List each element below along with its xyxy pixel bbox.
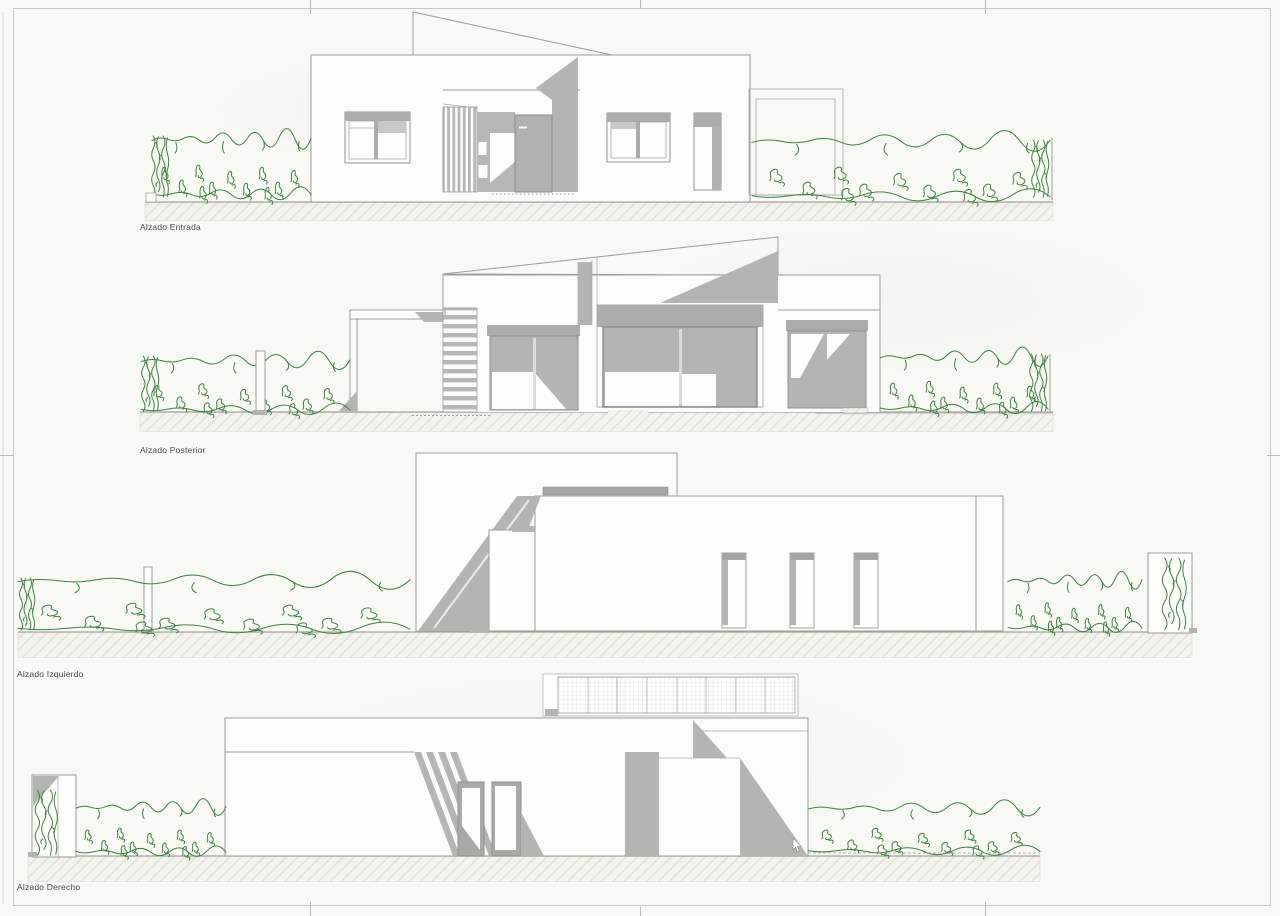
gate-frame xyxy=(749,89,843,195)
entry-door xyxy=(515,115,552,192)
vine xyxy=(1032,140,1049,197)
ground-hatch xyxy=(18,633,1192,658)
glass-door-left xyxy=(487,325,580,410)
hedge-right xyxy=(808,800,1040,859)
drawing-sheet: Alzado Entrada Alzado Posterior Alzado I… xyxy=(0,0,1280,916)
window-left xyxy=(345,112,410,163)
elevations-drawing xyxy=(0,0,1280,916)
hedge-left xyxy=(76,799,226,861)
louver-panel xyxy=(443,308,477,412)
elevation-derecho xyxy=(28,674,1040,882)
fence-post xyxy=(144,567,152,631)
narrow-window-3 xyxy=(854,553,878,628)
elevation-label-entrada: Alzado Entrada xyxy=(140,222,201,232)
hedge-left xyxy=(146,129,311,205)
green-wall-tower xyxy=(1148,553,1197,633)
sloped-roof xyxy=(443,237,778,275)
green-wall-tower xyxy=(28,775,76,857)
elevation-izquierdo xyxy=(18,453,1197,658)
ground-hatch xyxy=(145,203,1053,221)
column-shadow xyxy=(625,752,659,856)
door-2 xyxy=(492,782,521,856)
door-1 xyxy=(458,782,484,856)
fence-post xyxy=(256,351,265,412)
window-right xyxy=(786,320,868,408)
window-right xyxy=(607,113,670,162)
narrow-window xyxy=(694,113,721,190)
sloped-roof xyxy=(413,12,612,55)
slat-screen xyxy=(443,107,477,192)
glass-door-center xyxy=(597,305,763,407)
stair-front-wall xyxy=(489,530,535,631)
elevation-label-izquierdo: Alzado Izquierdo xyxy=(17,669,84,679)
sill-hatch xyxy=(608,410,648,415)
trellis xyxy=(543,674,798,716)
vine xyxy=(152,136,169,197)
narrow-window-1 xyxy=(722,553,746,628)
ground-hatch xyxy=(28,857,1040,882)
elevation-entrada xyxy=(145,12,1053,221)
entry-porch-wall xyxy=(477,112,517,192)
hedge-left xyxy=(141,351,350,419)
ground-hatch xyxy=(140,413,1053,432)
door-handle xyxy=(519,127,527,129)
hedge-right xyxy=(1008,571,1142,636)
vine xyxy=(1030,354,1047,411)
hedge-left xyxy=(18,571,410,637)
elevation-label-posterior: Alzado Posterior xyxy=(140,445,206,455)
hedge-right xyxy=(752,131,1052,207)
elevation-posterior xyxy=(140,237,1053,432)
roof-cap xyxy=(543,487,668,495)
low-block xyxy=(535,496,1003,631)
fold-mark-top xyxy=(311,0,986,14)
fold-mark-bottom xyxy=(311,902,986,916)
elevation-label-derecho: Alzado Derecho xyxy=(17,882,80,892)
pergola xyxy=(338,310,445,412)
vine xyxy=(142,356,159,411)
fence-post xyxy=(146,193,156,202)
hedge-right xyxy=(880,347,1050,418)
narrow-window-2 xyxy=(790,553,814,628)
vine xyxy=(20,578,35,630)
